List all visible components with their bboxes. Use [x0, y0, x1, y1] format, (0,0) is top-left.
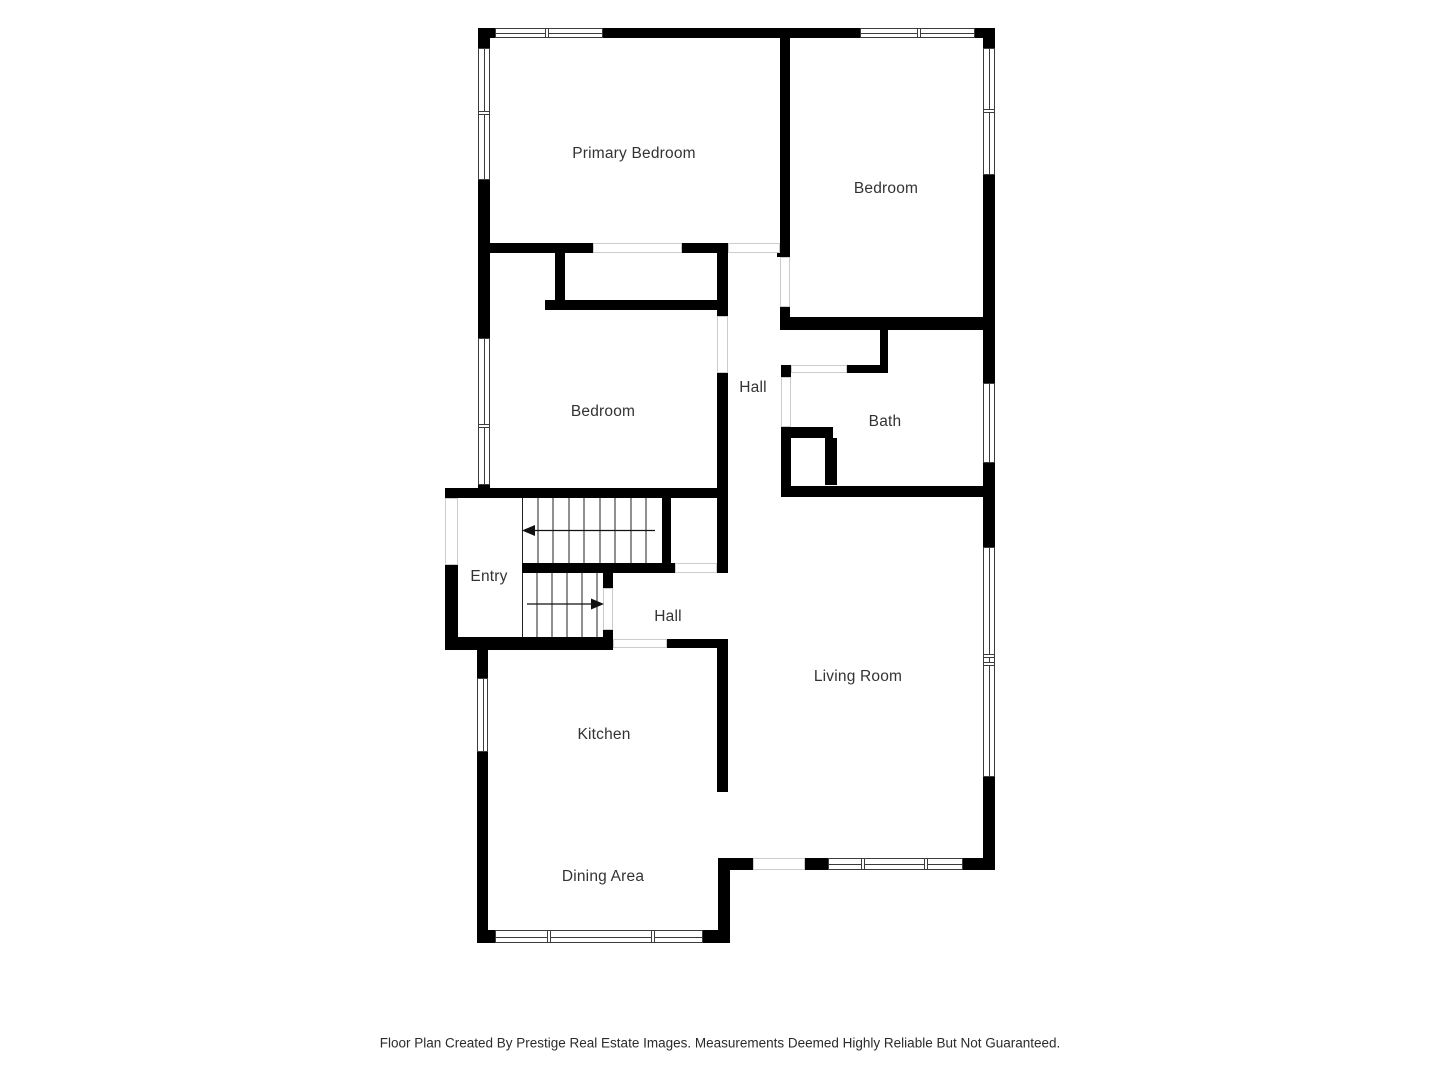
door-opening — [603, 588, 613, 630]
wall — [780, 38, 790, 247]
stair-direction-arrow-down — [527, 599, 604, 610]
wall — [478, 28, 495, 38]
wall — [717, 373, 728, 573]
wall — [603, 573, 613, 588]
wall — [445, 488, 728, 498]
wall — [718, 858, 753, 870]
wall — [781, 365, 791, 377]
wall — [983, 463, 995, 547]
door-opening — [728, 243, 780, 253]
wall — [975, 28, 995, 38]
room-label-hall-upper: Hall — [739, 379, 767, 397]
window — [828, 858, 963, 870]
window — [983, 383, 995, 463]
wall — [603, 630, 613, 642]
room-label-bath: Bath — [869, 413, 902, 431]
window — [983, 547, 995, 777]
wall — [718, 858, 730, 943]
window-divider — [479, 111, 489, 115]
wall — [478, 38, 490, 48]
room-label-living-room: Living Room — [814, 668, 902, 686]
room-label-entry: Entry — [470, 568, 507, 586]
stair-direction-arrow-up — [522, 525, 655, 536]
window — [478, 48, 490, 180]
room-label-kitchen: Kitchen — [577, 726, 630, 744]
front-door-opening — [445, 498, 458, 565]
door-opening — [780, 257, 790, 307]
wall — [983, 777, 995, 870]
wall — [825, 438, 837, 485]
wall — [983, 38, 995, 48]
door-opening — [717, 316, 728, 373]
room-label-dining-area: Dining Area — [562, 868, 644, 886]
window-divider — [917, 29, 921, 37]
door-opening — [613, 639, 667, 648]
window-divider — [651, 931, 655, 942]
room-label-bedroom-top-right: Bedroom — [854, 180, 918, 198]
window-divider — [861, 859, 865, 869]
wall — [780, 317, 995, 330]
footer-disclaimer: Floor Plan Created By Prestige Real Esta… — [380, 1036, 1061, 1051]
floor-plan-canvas: Primary Bedroom Bedroom Bedroom Hall Bat… — [0, 0, 1440, 1080]
wall — [555, 253, 565, 303]
wall — [847, 365, 888, 373]
window — [495, 930, 703, 943]
room-label-bedroom-middle: Bedroom — [571, 403, 635, 421]
wall — [805, 858, 828, 870]
window-divider — [545, 29, 549, 37]
wall — [445, 637, 613, 650]
wall — [983, 175, 995, 383]
door-opening — [791, 365, 847, 373]
window — [860, 28, 975, 38]
back-door-opening — [753, 858, 805, 870]
wall — [478, 243, 593, 253]
window-divider — [547, 931, 551, 942]
door-opening — [675, 563, 717, 573]
wall — [667, 639, 728, 648]
wall — [545, 300, 728, 310]
wall — [477, 752, 488, 943]
window-divider — [984, 109, 994, 113]
wall — [662, 498, 671, 563]
window — [495, 28, 603, 38]
window-divider — [984, 654, 994, 658]
door-opening — [781, 377, 791, 427]
window — [478, 338, 490, 485]
window-divider — [984, 662, 994, 666]
wall — [477, 930, 495, 943]
wall — [717, 248, 728, 316]
window-divider — [924, 859, 928, 869]
window-divider — [479, 424, 489, 428]
stair-flight-lower — [523, 573, 598, 637]
wall — [477, 650, 488, 678]
room-label-primary-bedroom: Primary Bedroom — [572, 145, 696, 163]
wall — [717, 648, 728, 792]
wall — [522, 563, 675, 573]
window — [477, 678, 488, 752]
door-opening — [593, 243, 682, 253]
stair-flight-upper — [523, 498, 647, 563]
wall — [781, 427, 833, 438]
wall — [603, 28, 860, 38]
wall — [963, 858, 995, 870]
wall — [478, 180, 490, 338]
room-label-hall-lower: Hall — [654, 608, 682, 626]
window — [983, 48, 995, 175]
wall — [781, 486, 995, 497]
